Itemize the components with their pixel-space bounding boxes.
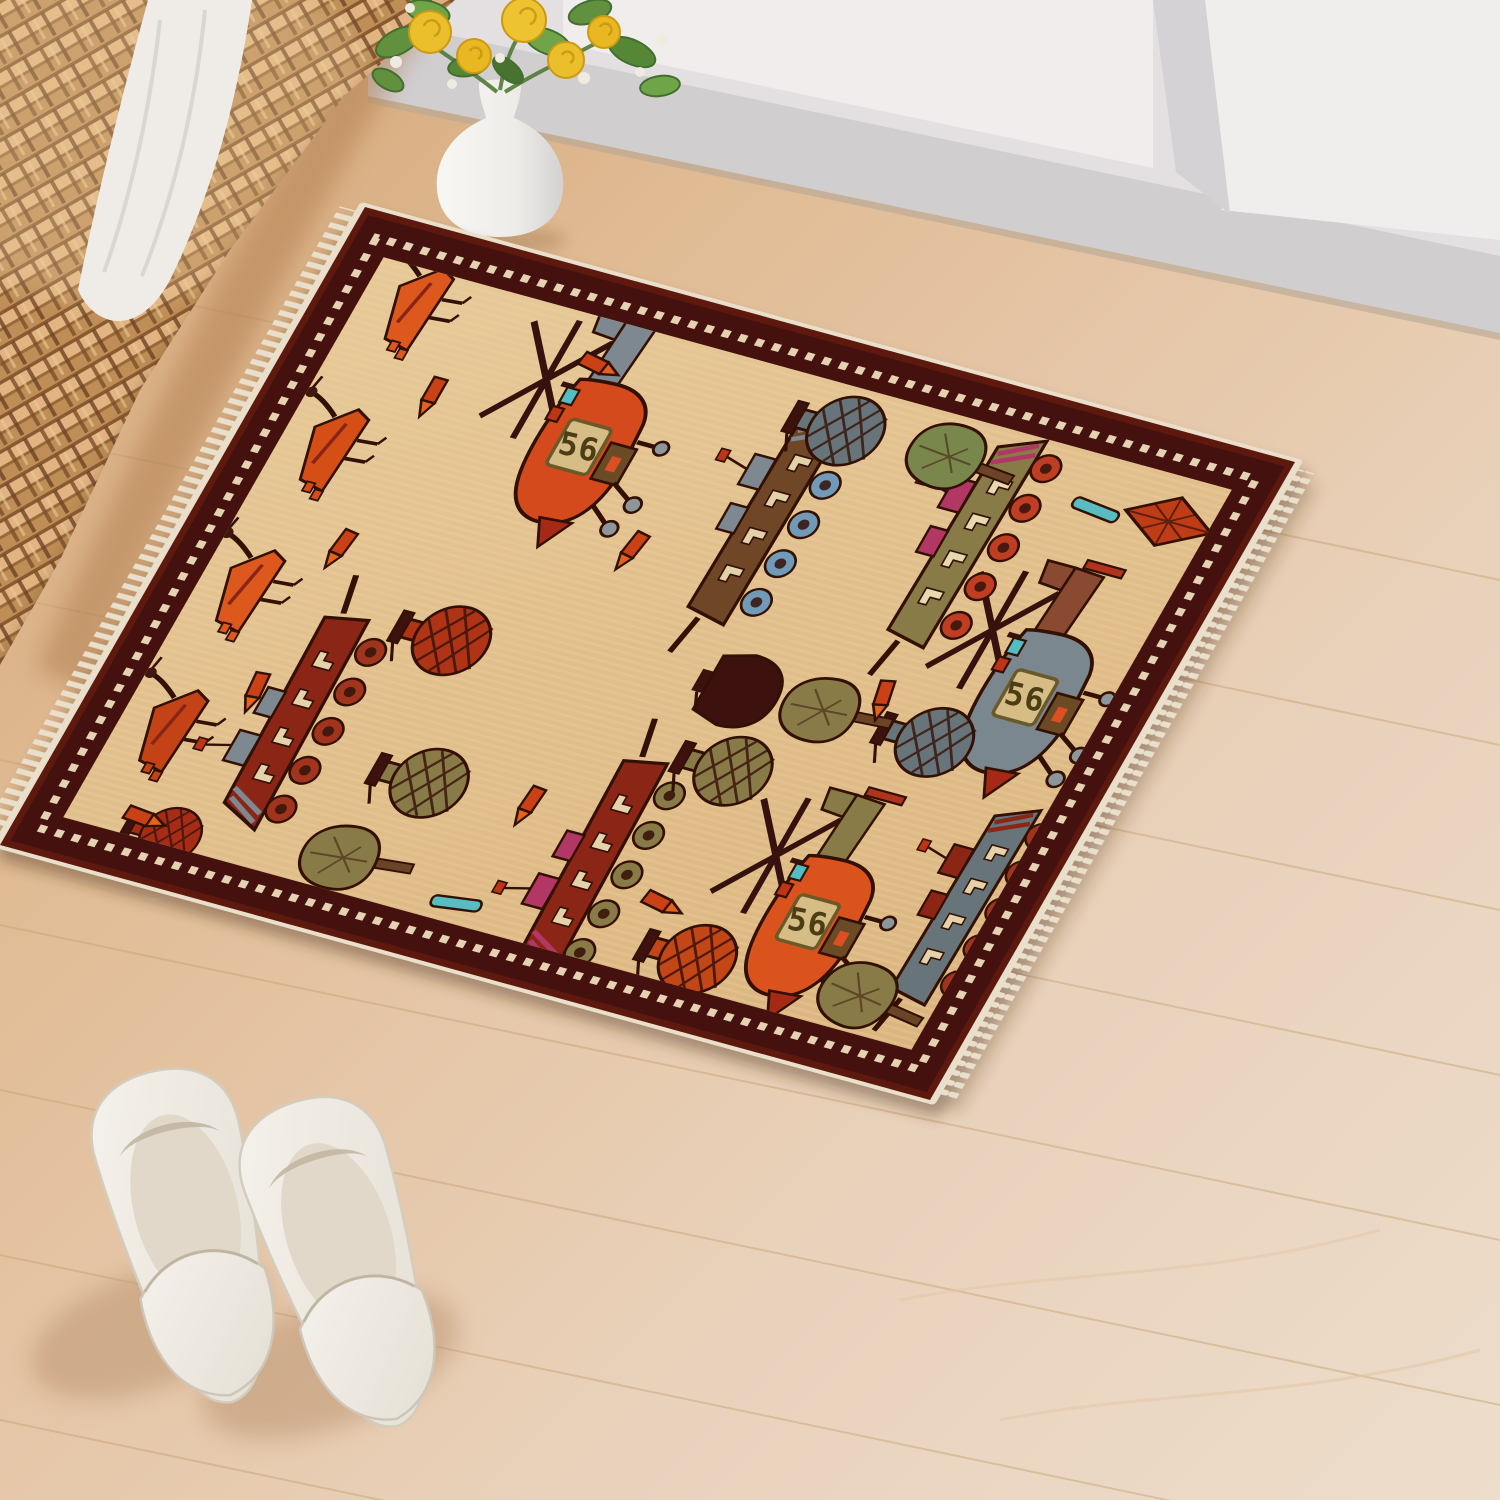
scene-svg: 56 56 56: [0, 0, 1500, 1500]
room-scene: 56 56 56: [0, 0, 1500, 1500]
vignette: [0, 0, 1500, 1500]
